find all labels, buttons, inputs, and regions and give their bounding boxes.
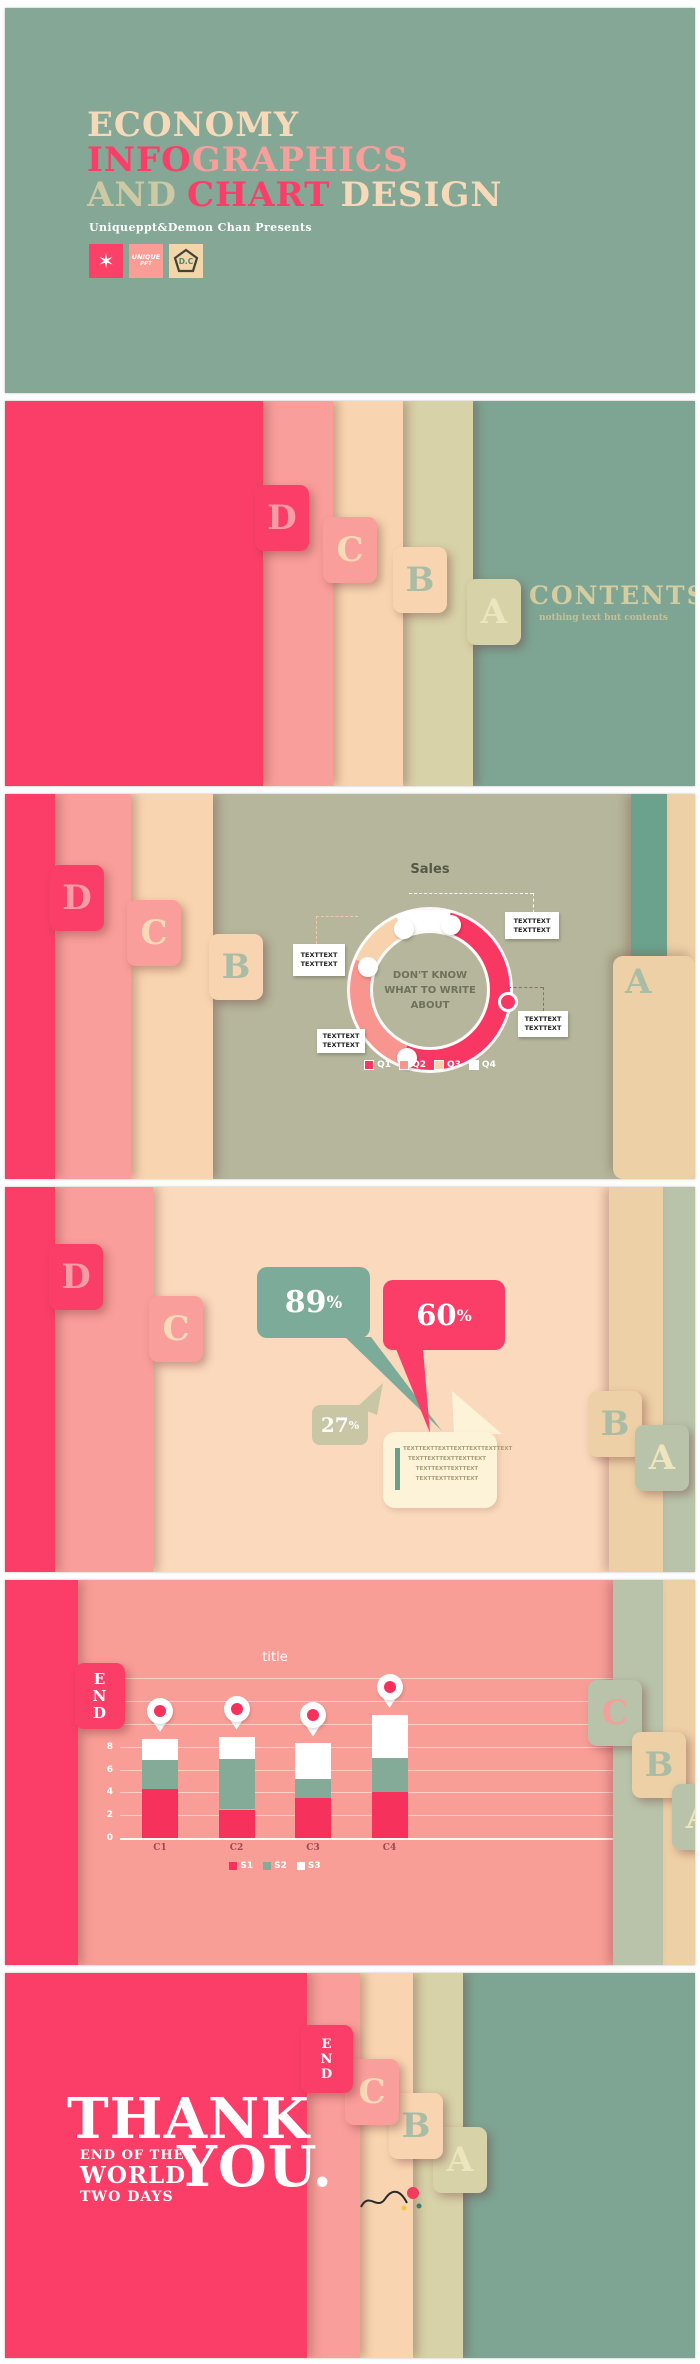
legend-label: Q3	[447, 1060, 461, 1070]
end-letter: D	[93, 1705, 107, 1722]
callout-text: TEXTTEXT	[301, 951, 338, 960]
subtitle-line3: TWO DAYS	[80, 2190, 186, 2204]
slide-5-bar-chart: E N D title C B A S1S2S3 02468C1C2C3C4	[5, 1580, 695, 1965]
dc-badge-text: D.C	[169, 257, 203, 266]
title-word-info: INFO	[87, 140, 192, 180]
bar-pin-dot	[384, 1681, 396, 1693]
callout-text: TEXTTEXT	[514, 917, 551, 926]
legend-item: S3	[297, 1861, 321, 1871]
legend-swatch	[399, 1060, 409, 1070]
title-line-2: INFOGRAPHICS	[87, 143, 512, 178]
note-line: TEXTTEXTTEXTTEXT	[403, 1464, 491, 1474]
gridline	[120, 1678, 632, 1679]
legend-swatch	[364, 1060, 374, 1070]
segment-junction-dot	[358, 957, 378, 977]
contents-title: CONTENTS	[529, 581, 695, 610]
callout-text: TEXTTEXT	[323, 1032, 360, 1041]
legend-label: Q1	[377, 1060, 391, 1070]
x-axis-label: C1	[140, 1843, 180, 1853]
bar-segment-s2-c3	[295, 1779, 331, 1798]
legend-swatch	[263, 1862, 271, 1870]
layer-band-d	[5, 1187, 55, 1572]
tab-b: B	[393, 547, 447, 613]
title-line-3: ANDCHARTDESIGN	[87, 178, 512, 213]
end-letter: N	[321, 2052, 334, 2067]
donut-callout-top-right: TEXTTEXTTEXTTEXT	[505, 912, 559, 939]
slide-6-thank-you: E N D C B A THANK YOU. END OF THE WORLD …	[5, 1973, 695, 2358]
tab-b: B	[209, 934, 263, 1000]
donut-chart: DON'T KNOW WHAT TO WRITE ABOUT	[347, 907, 513, 1073]
legend-item: Q3	[434, 1060, 461, 1070]
contents-subtitle: nothing text but contents	[539, 613, 668, 623]
tab-c: C	[345, 2059, 399, 2125]
layer-band-d	[5, 794, 55, 1179]
gridline	[120, 1838, 632, 1840]
donut-center-line1: DON'T KNOW	[373, 968, 487, 983]
bar-pin-dot	[231, 1703, 243, 1715]
donut-chart-title: Sales	[347, 862, 513, 877]
callout-text: TEXTTEXT	[514, 926, 551, 935]
callout-connector-top	[533, 893, 534, 913]
tab-c: C	[323, 517, 377, 583]
percent-sign: %	[349, 1419, 359, 1432]
tab-d: D	[255, 485, 309, 551]
you-text: YOU.	[177, 2139, 333, 2195]
title-word-design: DESIGN	[340, 175, 502, 215]
bar-segment-s1-c2	[219, 1810, 255, 1839]
legend-item: Q2	[399, 1060, 426, 1070]
callout-connector-right	[543, 987, 544, 1011]
donut-hole: DON'T KNOW WHAT TO WRITE ABOUT	[370, 930, 490, 1050]
tab-a: A	[625, 962, 651, 1002]
y-axis-tick: 4	[95, 1787, 113, 1797]
percent-sign: %	[457, 1306, 472, 1325]
bar-segment-s3-c1	[142, 1739, 178, 1761]
bar-segment-s1-c3	[295, 1798, 331, 1838]
legend-label: S2	[274, 1861, 287, 1871]
callout-connector-bottom	[339, 1018, 340, 1029]
callout-connector-left	[316, 916, 317, 944]
bar-segment-s1-c4	[372, 1792, 408, 1838]
bar-chart-legend: S1S2S3	[125, 1861, 425, 1871]
end-letter: E	[322, 2037, 333, 2052]
layer-band-d	[5, 401, 263, 786]
tab-a-panel: A	[613, 956, 695, 1179]
subtitle-line2: WORLD	[80, 2164, 186, 2187]
bar-pin-dot	[154, 1705, 166, 1717]
donut-callout-right: TEXTTEXTTEXTTEXT	[518, 1011, 568, 1037]
tab-a: A	[672, 1784, 695, 1850]
bar-segment-s3-c2	[219, 1737, 255, 1760]
tab-c: C	[127, 900, 181, 966]
legend-item: Q1	[364, 1060, 391, 1070]
right-band-sage	[661, 1187, 695, 1572]
legend-swatch	[229, 1862, 237, 1870]
title-word-chart: CHART	[187, 175, 331, 215]
bar-segment-s2-c1	[142, 1760, 178, 1789]
segment-junction-dot	[441, 915, 461, 935]
legend-item: Q4	[469, 1060, 496, 1070]
bar-segment-s3-c3	[295, 1743, 331, 1778]
infographic-deck-preview: ECONOMY INFOGRAPHICS ANDCHARTDESIGN Uniq…	[0, 0, 700, 2364]
legend-swatch	[434, 1060, 444, 1070]
uniqueppt-badge-line2: PPT	[140, 261, 152, 268]
gridline	[120, 1701, 632, 1702]
end-letter: E	[94, 1671, 106, 1688]
callout-text: TEXTTEXT	[301, 960, 338, 969]
slide-2-contents: D C B A CONTENTS nothing text but conten…	[5, 401, 695, 786]
marker-dot	[498, 992, 518, 1012]
x-axis-label: C3	[293, 1843, 333, 1853]
signature-scribble	[357, 2181, 427, 2217]
end-letter: D	[321, 2067, 333, 2082]
bar-segment-s3-c4	[372, 1715, 408, 1758]
layer-band-end	[5, 1580, 78, 1965]
y-axis-tick: 6	[95, 1765, 113, 1775]
bar-segment-s2-c2	[219, 1759, 255, 1809]
donut-legend: Q1Q2Q3Q4	[347, 1060, 513, 1070]
presenter-credit: Uniqueppt&Demon Chan Presents	[89, 221, 312, 234]
legend-label: S3	[308, 1861, 321, 1871]
slide-4-percent-callouts: D C B A 89% 60% 27% TEXTTEXTTEXTTEXTTEXT…	[5, 1187, 695, 1572]
deck-title: ECONOMY INFOGRAPHICS ANDCHARTDESIGN	[87, 108, 512, 213]
percent-value: 89	[285, 1285, 327, 1320]
title-word-graphics: GRAPHICS	[192, 140, 409, 180]
speech-bubble-89: 89%	[257, 1267, 370, 1338]
note-text: TEXTTEXTTEXTTEXTTEXTTEXTTEXT TEXTTEXTTEX…	[403, 1444, 491, 1484]
note-accent-bar	[395, 1448, 400, 1490]
bar-chart-title: title	[125, 1650, 425, 1665]
legend-label: S1	[240, 1861, 253, 1871]
tab-a: A	[635, 1425, 689, 1491]
donut-center-line2: WHAT TO WRITE ABOUT	[373, 983, 487, 1013]
legend-label: Q4	[482, 1060, 496, 1070]
title-word-and: AND	[87, 175, 177, 215]
x-axis-label: C4	[370, 1843, 410, 1853]
bar-segment-s1-c1	[142, 1789, 178, 1838]
end-letter: N	[93, 1688, 108, 1705]
end-tab: E N D	[75, 1663, 125, 1729]
donut-callout-bottom: TEXTTEXTTEXTTEXT	[317, 1029, 365, 1053]
callout-text: TEXTTEXT	[525, 1024, 562, 1033]
callout-connector-top	[409, 893, 533, 894]
tab-d: D	[50, 865, 104, 931]
callout-connector-left	[316, 916, 358, 917]
title-word-economy: ECONOMY	[87, 105, 299, 145]
y-axis-tick: 0	[95, 1833, 113, 1843]
uniqueppt-badge-line1: UNIQUE	[132, 254, 160, 261]
legend-label: Q2	[412, 1060, 426, 1070]
percent-sign: %	[327, 1293, 343, 1312]
note-line: TEXTTEXTTEXTTEXT	[403, 1474, 491, 1484]
x-axis-label: C2	[217, 1843, 257, 1853]
tab-d: D	[49, 1244, 103, 1310]
y-axis-tick: 2	[95, 1810, 113, 1820]
slide-1-title: ECONOMY INFOGRAPHICS ANDCHARTDESIGN Uniq…	[5, 8, 695, 393]
tab-a: A	[467, 579, 521, 645]
callout-text: TEXTTEXT	[525, 1015, 562, 1024]
slide-3-donut-chart: D C B A Sales DON'T KNOW WHAT TO WRITE A…	[5, 794, 695, 1179]
legend-item: S1	[229, 1861, 253, 1871]
star-icon: ✶	[98, 249, 115, 273]
callout-connector-right	[503, 987, 543, 988]
end-tab: E N D	[301, 2025, 353, 2093]
donut-callout-left: TEXTTEXTTEXTTEXT	[293, 944, 345, 976]
speech-bubble-60: 60%	[383, 1280, 505, 1350]
percent-value: 27	[321, 1413, 349, 1437]
uniqueppt-badge: UNIQUE PPT	[129, 244, 163, 278]
donut-center-text: DON'T KNOW WHAT TO WRITE ABOUT	[373, 968, 487, 1013]
note-line: TEXTTEXTTEXTTEXTTEXT	[403, 1454, 491, 1464]
callout-text: TEXTTEXT	[323, 1041, 360, 1050]
legend-item: S2	[263, 1861, 287, 1871]
legend-swatch	[297, 1862, 305, 1870]
y-axis-tick: 8	[95, 1742, 113, 1752]
tab-c: C	[149, 1296, 203, 1362]
thank-you-subtitle: END OF THE WORLD TWO DAYS	[80, 2149, 186, 2204]
note-line: TEXTTEXTTEXTTEXTTEXTTEXTTEXT	[403, 1444, 491, 1454]
right-band-tan	[609, 1187, 663, 1572]
star-badge: ✶	[89, 244, 123, 278]
title-line-1: ECONOMY	[87, 108, 512, 143]
legend-swatch	[469, 1060, 479, 1070]
dc-badge: D.C	[169, 244, 203, 278]
tab-b: B	[588, 1391, 642, 1457]
bar-segment-s2-c4	[372, 1758, 408, 1792]
speech-bubble-27: 27%	[312, 1405, 368, 1445]
subtitle-line1: END OF THE	[80, 2149, 186, 2162]
percent-value: 60	[416, 1298, 456, 1332]
